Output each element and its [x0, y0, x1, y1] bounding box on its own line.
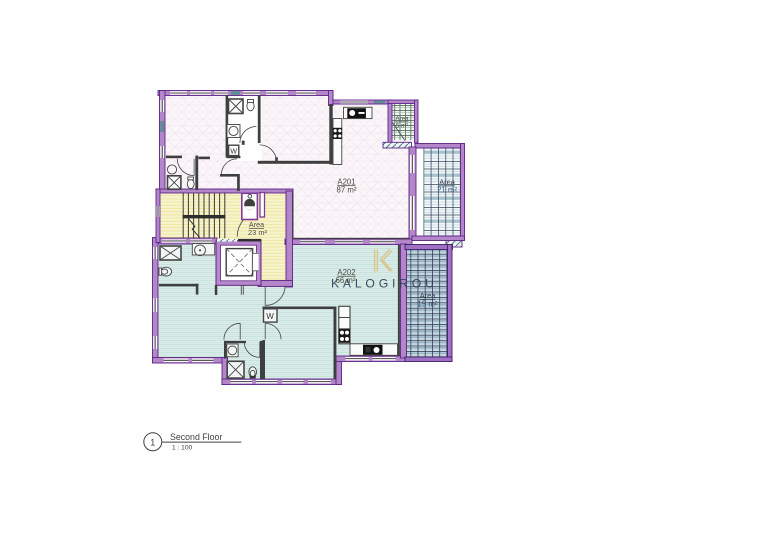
svg-text:87 m²: 87 m² [337, 186, 357, 195]
svg-text:21 m²: 21 m² [437, 186, 457, 195]
svg-text:Area: Area [395, 116, 409, 123]
svg-text:Second Floor: Second Floor [170, 432, 222, 442]
svg-text:5 m²: 5 m² [396, 123, 408, 130]
svg-text:23 m²: 23 m² [248, 228, 267, 237]
svg-text:W: W [266, 312, 274, 321]
svg-text:1 : 100: 1 : 100 [172, 444, 192, 451]
svg-text:1: 1 [150, 437, 155, 447]
svg-text:W: W [230, 149, 237, 156]
svg-text:KALOGIROU: KALOGIROU [331, 277, 438, 291]
svg-text:15 m²: 15 m² [418, 300, 438, 309]
